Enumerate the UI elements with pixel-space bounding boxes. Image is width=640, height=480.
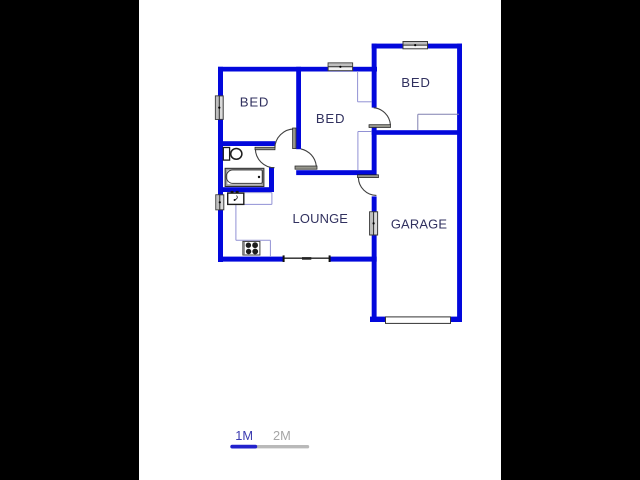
svg-text:GARAGE: GARAGE <box>391 217 448 232</box>
svg-text:BED: BED <box>316 111 346 126</box>
svg-text:1M: 1M <box>235 428 253 443</box>
svg-text:LOUNGE: LOUNGE <box>292 211 348 226</box>
svg-text:BED: BED <box>240 95 270 110</box>
svg-text:2M: 2M <box>273 428 291 443</box>
svg-text:BED: BED <box>401 75 431 90</box>
